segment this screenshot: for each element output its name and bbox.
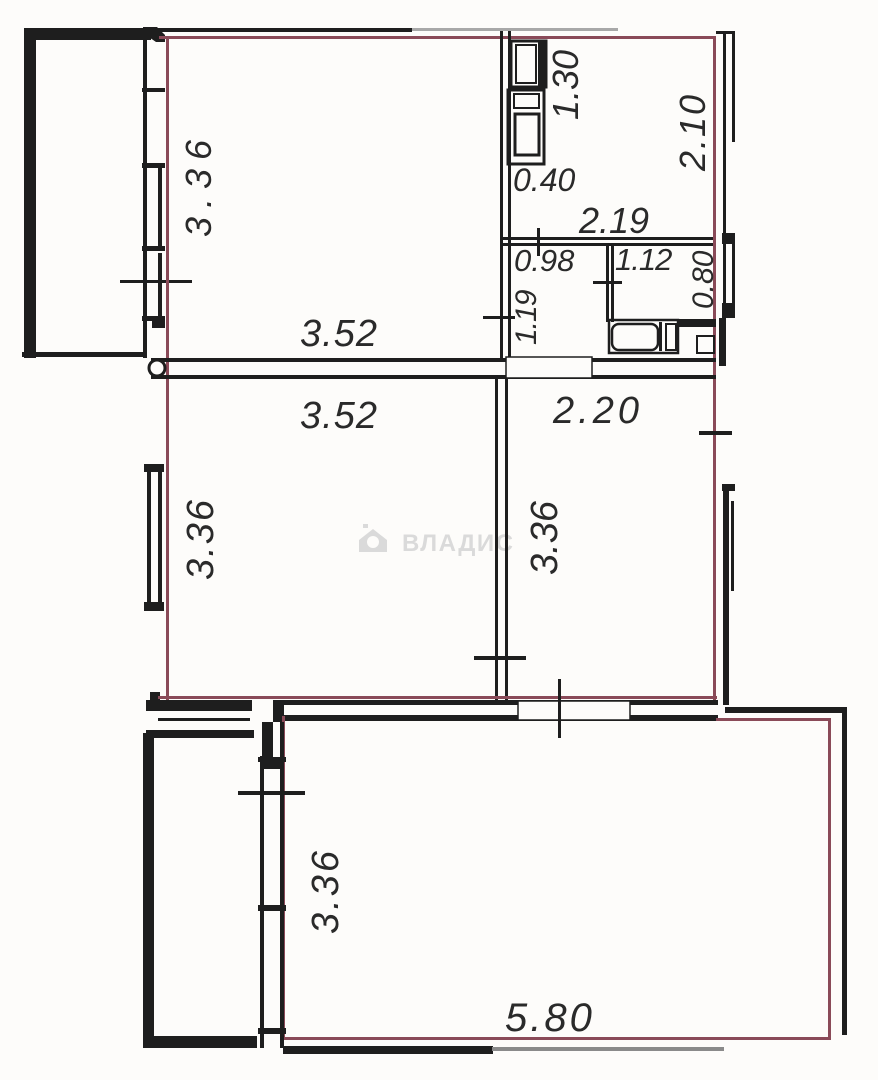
svg-text:5.80: 5.80 bbox=[505, 996, 595, 1040]
svg-text:2.20: 2.20 bbox=[552, 390, 643, 432]
svg-text:0.80: 0.80 bbox=[687, 250, 720, 309]
svg-text:3.52: 3.52 bbox=[300, 395, 378, 437]
svg-text:2.10: 2.10 bbox=[672, 93, 713, 172]
svg-text:3.36: 3.36 bbox=[305, 848, 347, 934]
svg-text:3.52: 3.52 bbox=[300, 313, 378, 355]
svg-text:1.12: 1.12 bbox=[615, 242, 672, 277]
svg-text:1.19: 1.19 bbox=[510, 289, 543, 345]
svg-text:1.30: 1.30 bbox=[545, 50, 586, 120]
svg-text:2.19: 2.19 bbox=[578, 200, 649, 241]
svg-text:0.98: 0.98 bbox=[514, 243, 575, 278]
svg-text:3.36: 3.36 bbox=[524, 500, 566, 575]
svg-text:3.36: 3.36 bbox=[180, 498, 222, 580]
svg-text:3.36: 3.36 bbox=[178, 131, 219, 237]
svg-text:0.40: 0.40 bbox=[513, 162, 575, 198]
